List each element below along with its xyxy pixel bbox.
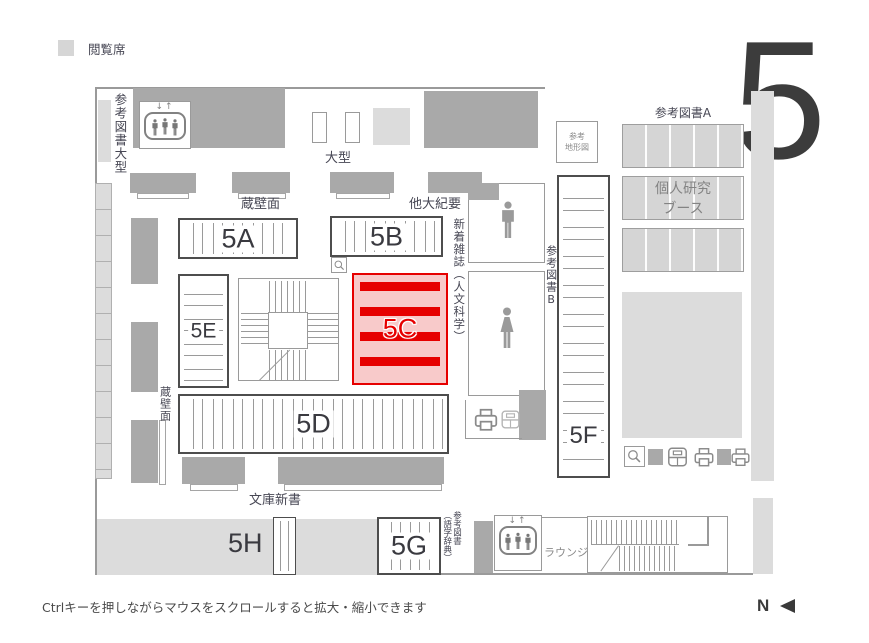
area-5H-label: 5H xyxy=(225,530,266,557)
person-icon xyxy=(151,119,159,136)
shelf-box xyxy=(312,112,327,143)
search-terminal-box xyxy=(331,257,347,273)
label-large-size: 大型 xyxy=(325,147,351,166)
area-5B-label: 5B xyxy=(367,223,406,250)
table-edge xyxy=(284,484,442,491)
area-5D: 5D xyxy=(178,394,449,454)
elevator-icon: ↓↑ xyxy=(499,517,537,555)
stair-steps xyxy=(591,520,679,545)
elevator-cab-icon xyxy=(144,112,186,140)
label-other-univ-bulletins: 他大紀要 xyxy=(409,193,461,212)
stair-rail xyxy=(600,545,619,571)
area-5C-highlighted: 5C xyxy=(352,273,448,385)
elevator-direction-arrows: ↓↑ xyxy=(144,103,186,112)
elevator-cab-icon xyxy=(499,526,537,555)
stair-wall xyxy=(707,517,709,546)
area-5D-label: 5D xyxy=(293,411,334,438)
female-restroom-icon xyxy=(496,307,518,349)
reading-area xyxy=(751,91,774,481)
table-block xyxy=(424,91,538,148)
table-block xyxy=(131,420,158,483)
compass-north-label: N xyxy=(757,596,769,616)
reference-maps-box: 参考 地形図 xyxy=(556,121,598,163)
area-5G: 5G xyxy=(377,517,441,575)
shelf-box xyxy=(273,517,296,575)
stair-steps xyxy=(241,313,268,348)
label-personal-research-booths: 個人研究 ブース xyxy=(622,180,744,219)
equipment-block xyxy=(648,449,663,465)
table-edge xyxy=(137,193,189,199)
reading-area xyxy=(373,108,410,145)
label-reference-books-b: 参考図書B xyxy=(544,245,557,315)
stair-steps xyxy=(269,281,307,312)
copier-icon xyxy=(473,406,499,433)
shelf-strip xyxy=(98,100,111,162)
shelf-box xyxy=(345,112,360,143)
area-5A: 5A xyxy=(178,218,298,259)
stair-landing xyxy=(268,312,308,349)
booth-row xyxy=(622,124,744,168)
central-staircase xyxy=(238,278,339,381)
label-reference-books-a: 参考図書A xyxy=(622,104,744,121)
label-wall-shelf-left: 蔵壁面 xyxy=(158,386,171,436)
label-reference-books-dictionaries: 参考図書 （語学辞典） xyxy=(441,511,461,575)
label-new-magazines: 新着雑誌（人文科学） xyxy=(452,218,465,386)
area-5B: 5B xyxy=(330,216,443,257)
person-icon xyxy=(161,117,169,136)
area-5A-label: 5A xyxy=(218,225,257,252)
label-reference-maps: 地形図 xyxy=(565,142,589,153)
copier-icon xyxy=(500,404,521,435)
table-block xyxy=(131,322,158,392)
table-block xyxy=(278,457,444,484)
wall-block xyxy=(519,390,546,440)
zoom-hint-text: Ctrlキーを押しながらマウスをスクロールすると拡大・縮小できます xyxy=(42,597,427,616)
table-block xyxy=(232,172,290,193)
area-5C-label: 5C xyxy=(380,316,421,343)
magnifier-icon xyxy=(333,259,346,272)
compass-west-arrow-icon xyxy=(780,599,795,613)
male-restroom-icon xyxy=(499,199,517,241)
elevator-direction-arrows: ↓↑ xyxy=(499,517,537,526)
wall-block xyxy=(468,183,499,200)
stair-steps xyxy=(308,313,338,348)
reading-area xyxy=(753,498,773,574)
reading-area xyxy=(622,292,742,438)
table-block xyxy=(182,457,245,484)
area-5F-label: 5F xyxy=(566,424,600,448)
library-floor-map-page: 閲覧席 5 参考図書大型 ↓↑ 大型 参考 地形図 xyxy=(0,0,869,643)
label-reference-maps: 参考 xyxy=(569,131,585,142)
copier-corner xyxy=(465,400,522,439)
area-5F: 5F xyxy=(557,175,610,478)
microfilm-reader-icon xyxy=(666,446,689,468)
table-block xyxy=(131,218,158,284)
equipment-block xyxy=(717,449,731,465)
staircase xyxy=(587,516,728,573)
person-icon xyxy=(524,533,532,551)
area-5G-label: 5G xyxy=(388,533,430,560)
elevator-icon: ↓↑ xyxy=(144,103,186,140)
wall xyxy=(542,517,587,518)
magnifier-icon xyxy=(626,448,643,465)
label-paperbacks: 文庫新書 xyxy=(249,489,301,508)
area-5E-label: 5E xyxy=(188,321,220,342)
person-icon xyxy=(504,533,512,551)
floor-plan[interactable]: 参考図書大型 ↓↑ 大型 参考 地形図 参考図書A 個人研究 xyxy=(0,0,869,643)
person-icon xyxy=(514,531,522,551)
table-edge xyxy=(190,484,238,491)
carrel-seats-strip xyxy=(95,183,112,479)
label-lounge: ラウンジ xyxy=(544,544,588,560)
area-5E: 5E xyxy=(178,274,229,388)
printer-icon xyxy=(730,446,751,468)
booth-row xyxy=(622,228,744,272)
stair-wall xyxy=(688,544,709,546)
table-block xyxy=(330,172,394,193)
stair-steps xyxy=(619,546,679,571)
shelf-rows xyxy=(276,521,293,571)
table-edge xyxy=(336,193,390,199)
person-icon xyxy=(171,119,179,136)
label-reference-books-large: 参考図書大型 xyxy=(112,93,126,185)
printer-icon xyxy=(693,446,715,468)
wall-block xyxy=(474,521,493,573)
table-block xyxy=(130,173,196,193)
personal-research-booths: 個人研究 ブース xyxy=(622,124,744,272)
label-wall-shelf-top: 蔵壁面 xyxy=(241,193,280,212)
search-terminal-box xyxy=(624,446,645,467)
